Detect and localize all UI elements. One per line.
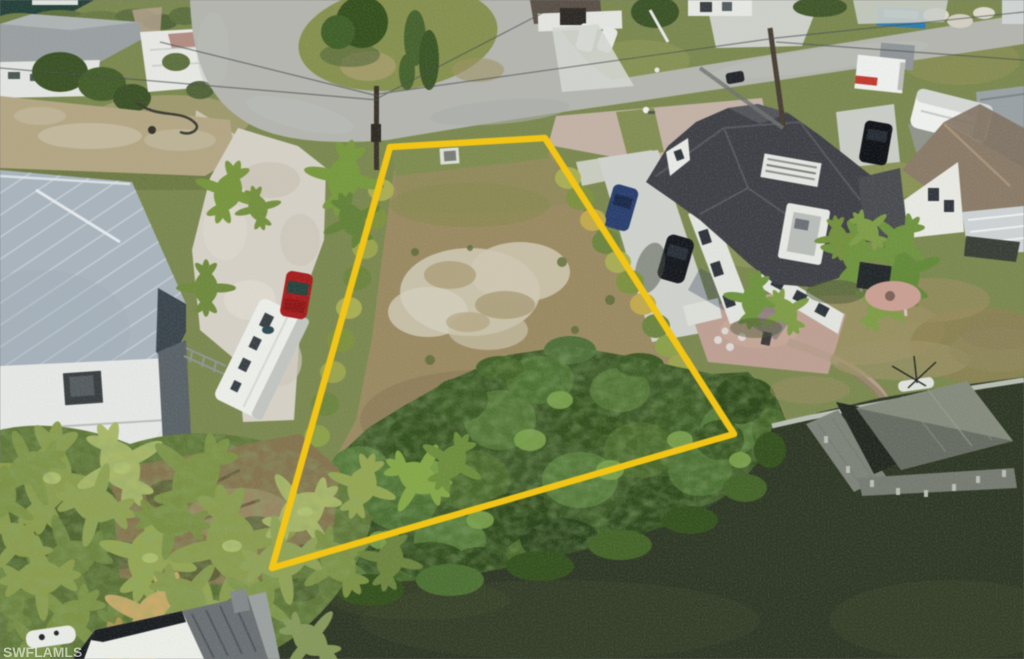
svg-text:SWFLAMLS: SWFLAMLS bbox=[3, 644, 82, 659]
